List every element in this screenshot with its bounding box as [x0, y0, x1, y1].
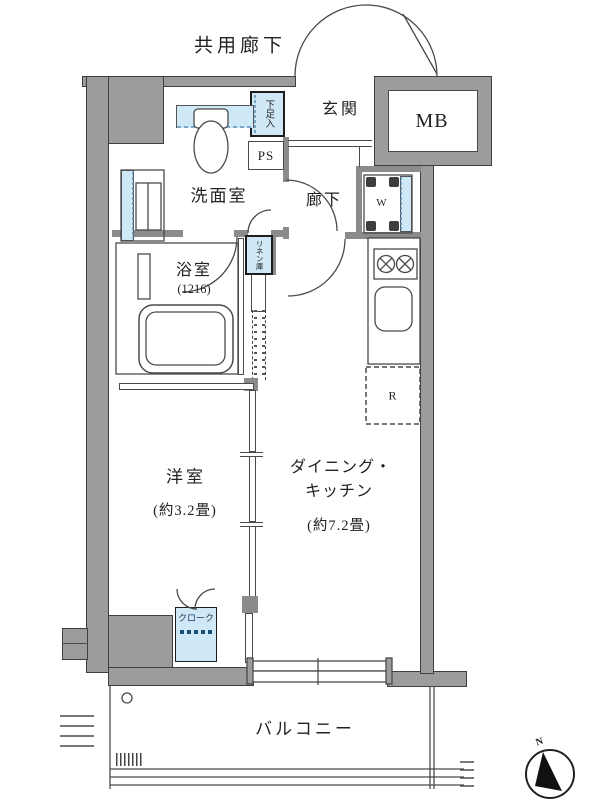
bathtub-inner [146, 312, 225, 365]
cloak-door-arc-left [177, 589, 197, 609]
wall-washer-nook-left [356, 166, 362, 233]
label-bathroom: 浴室 [176, 262, 212, 280]
balcony-hatch [116, 753, 144, 766]
label-dining-kitchen-2: キッチン [305, 483, 373, 501]
hall-right-line [359, 146, 360, 167]
stove-burner-right [397, 256, 414, 273]
entrance-door-arc [295, 5, 437, 76]
wall-right [420, 158, 434, 674]
washer-side-panel [400, 176, 412, 232]
label-shoe-cabinet: 下足入 [263, 100, 273, 129]
label-hallway: 廊下 [306, 192, 342, 210]
partition-panel-2 [249, 456, 256, 522]
washer-foot-tl [366, 177, 376, 187]
wall-western-room-top [119, 383, 254, 390]
label-meter-box: MB [415, 110, 448, 132]
washer-foot-br [389, 221, 399, 231]
partition-tick-1b [240, 456, 263, 457]
label-dining-kitchen-1: ダイニング・ [290, 459, 392, 477]
left-section-marks [60, 716, 94, 746]
compass-circle [526, 750, 574, 798]
kitchen-counter [368, 238, 420, 364]
entrance-step-line-1 [288, 140, 372, 141]
wall-bathroom-right [238, 238, 244, 375]
wall-left [86, 76, 109, 673]
wall-protrusion-line [62, 643, 88, 644]
label-western-room: 洋室 [166, 469, 206, 488]
partition-tick-1a [240, 452, 263, 453]
partition-panel-3 [249, 526, 256, 598]
bathroom-counter [138, 254, 150, 299]
label-bathroom-size: (1216) [177, 283, 210, 297]
partition-tick-2a [240, 522, 263, 523]
label-washroom: 洗面室 [191, 188, 248, 207]
label-north: N [534, 735, 545, 748]
dk-door-arc [288, 239, 345, 296]
label-common-corridor: 共用廊下 [194, 37, 286, 58]
right-section-marks [460, 762, 474, 786]
stove-burner-left-cross [380, 258, 392, 270]
bathtub-outer [139, 305, 233, 373]
cloak-door-arc-right [195, 589, 215, 609]
label-linen-closet: リネン庫 [255, 240, 263, 270]
wall-cloak-right [245, 613, 253, 663]
wall-dk-step [251, 272, 266, 312]
label-fridge: R [388, 389, 397, 402]
toilet-counter [176, 105, 254, 128]
label-pipe-space: PS [258, 149, 274, 163]
vanity-side-panel [121, 170, 134, 241]
stove-burner-right-cross [399, 258, 411, 270]
wall-bottom-left [108, 615, 173, 673]
washer-foot-tr [389, 177, 399, 187]
washer-foot-bl [366, 221, 376, 231]
floor-plan: 共用廊下 玄関 MB 下足入 PS 洗面室 廊下 W 浴室 (1216) リネン… [0, 0, 600, 800]
linen-door-arc [248, 210, 271, 233]
wall-dashed-strip [252, 310, 266, 380]
stove [374, 249, 417, 279]
wall-hall-kitchen [345, 232, 421, 239]
wall-partition-foot [242, 596, 258, 613]
bathroom-door-jamb-left [178, 230, 183, 237]
label-dining-kitchen-size: (約7.2畳) [307, 519, 371, 535]
compass-needle-icon [535, 752, 562, 791]
kitchen-sink [375, 287, 412, 331]
balcony-drain [122, 693, 132, 703]
label-entrance: 玄関 [322, 101, 360, 119]
toilet-bowl [194, 121, 228, 173]
label-washer: W [376, 197, 387, 209]
wall-bottom-band-left [108, 667, 254, 686]
partition-panel-1 [249, 390, 256, 452]
vanity-basin [136, 183, 161, 230]
wall-left-protrusion [62, 628, 88, 660]
balcony-window-outer [251, 661, 389, 671]
balcony-window-inner [251, 671, 389, 682]
label-cloak: クローク [178, 614, 214, 624]
partition-tick-2b [240, 526, 263, 527]
entrance-door-leaf [403, 14, 437, 74]
label-balcony: バルコニー [255, 721, 355, 740]
stove-burner-left [378, 256, 395, 273]
bathroom-door-jamb-right [234, 230, 239, 237]
label-western-room-size: (約3.2畳) [153, 504, 217, 520]
wall-washer-nook-top [356, 166, 421, 172]
